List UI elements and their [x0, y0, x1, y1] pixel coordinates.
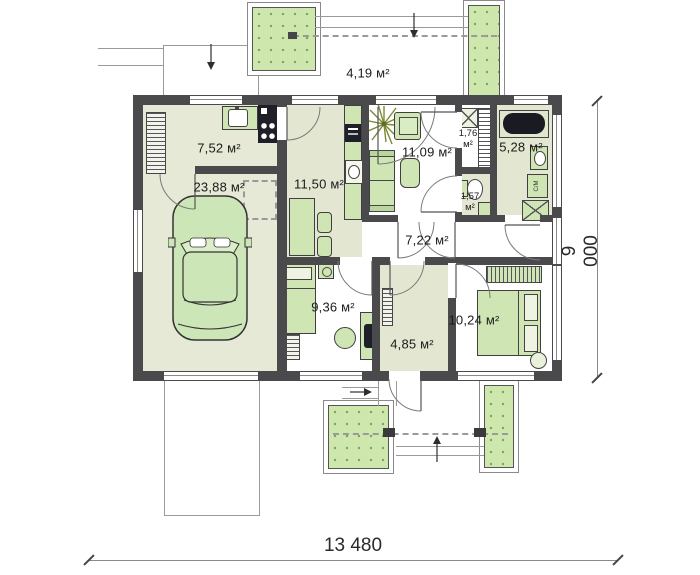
dimension-height-label: 9 000: [559, 228, 603, 274]
room-label-bedroom-office: 9,36 м²: [311, 300, 355, 315]
room-label-kitchen: 11,50 м²: [294, 177, 344, 192]
floor-plan: С/М: [0, 0, 700, 575]
exterior-area-label: 4,19 м²: [346, 66, 390, 81]
dimension-width-label: 13 480: [308, 535, 398, 557]
room-label-corridor: 7,22 м²: [405, 233, 449, 248]
room-label-wc: 1,57 м²: [456, 192, 484, 214]
room-label-living: 11,09 м²: [402, 145, 452, 160]
room-label-bedroom: 10,24 м²: [448, 313, 499, 328]
room-label-hall: 4,85 м²: [390, 337, 434, 352]
annotation-overlay: [0, 0, 700, 575]
room-label-closet: 1,76 м²: [454, 129, 482, 151]
room-label-garage: 23,88 м²: [193, 180, 244, 195]
room-label-utility: 7,52 м²: [197, 141, 241, 156]
dimension-line-width: [88, 560, 618, 561]
room-label-bathroom: 5,28 м²: [499, 140, 543, 155]
